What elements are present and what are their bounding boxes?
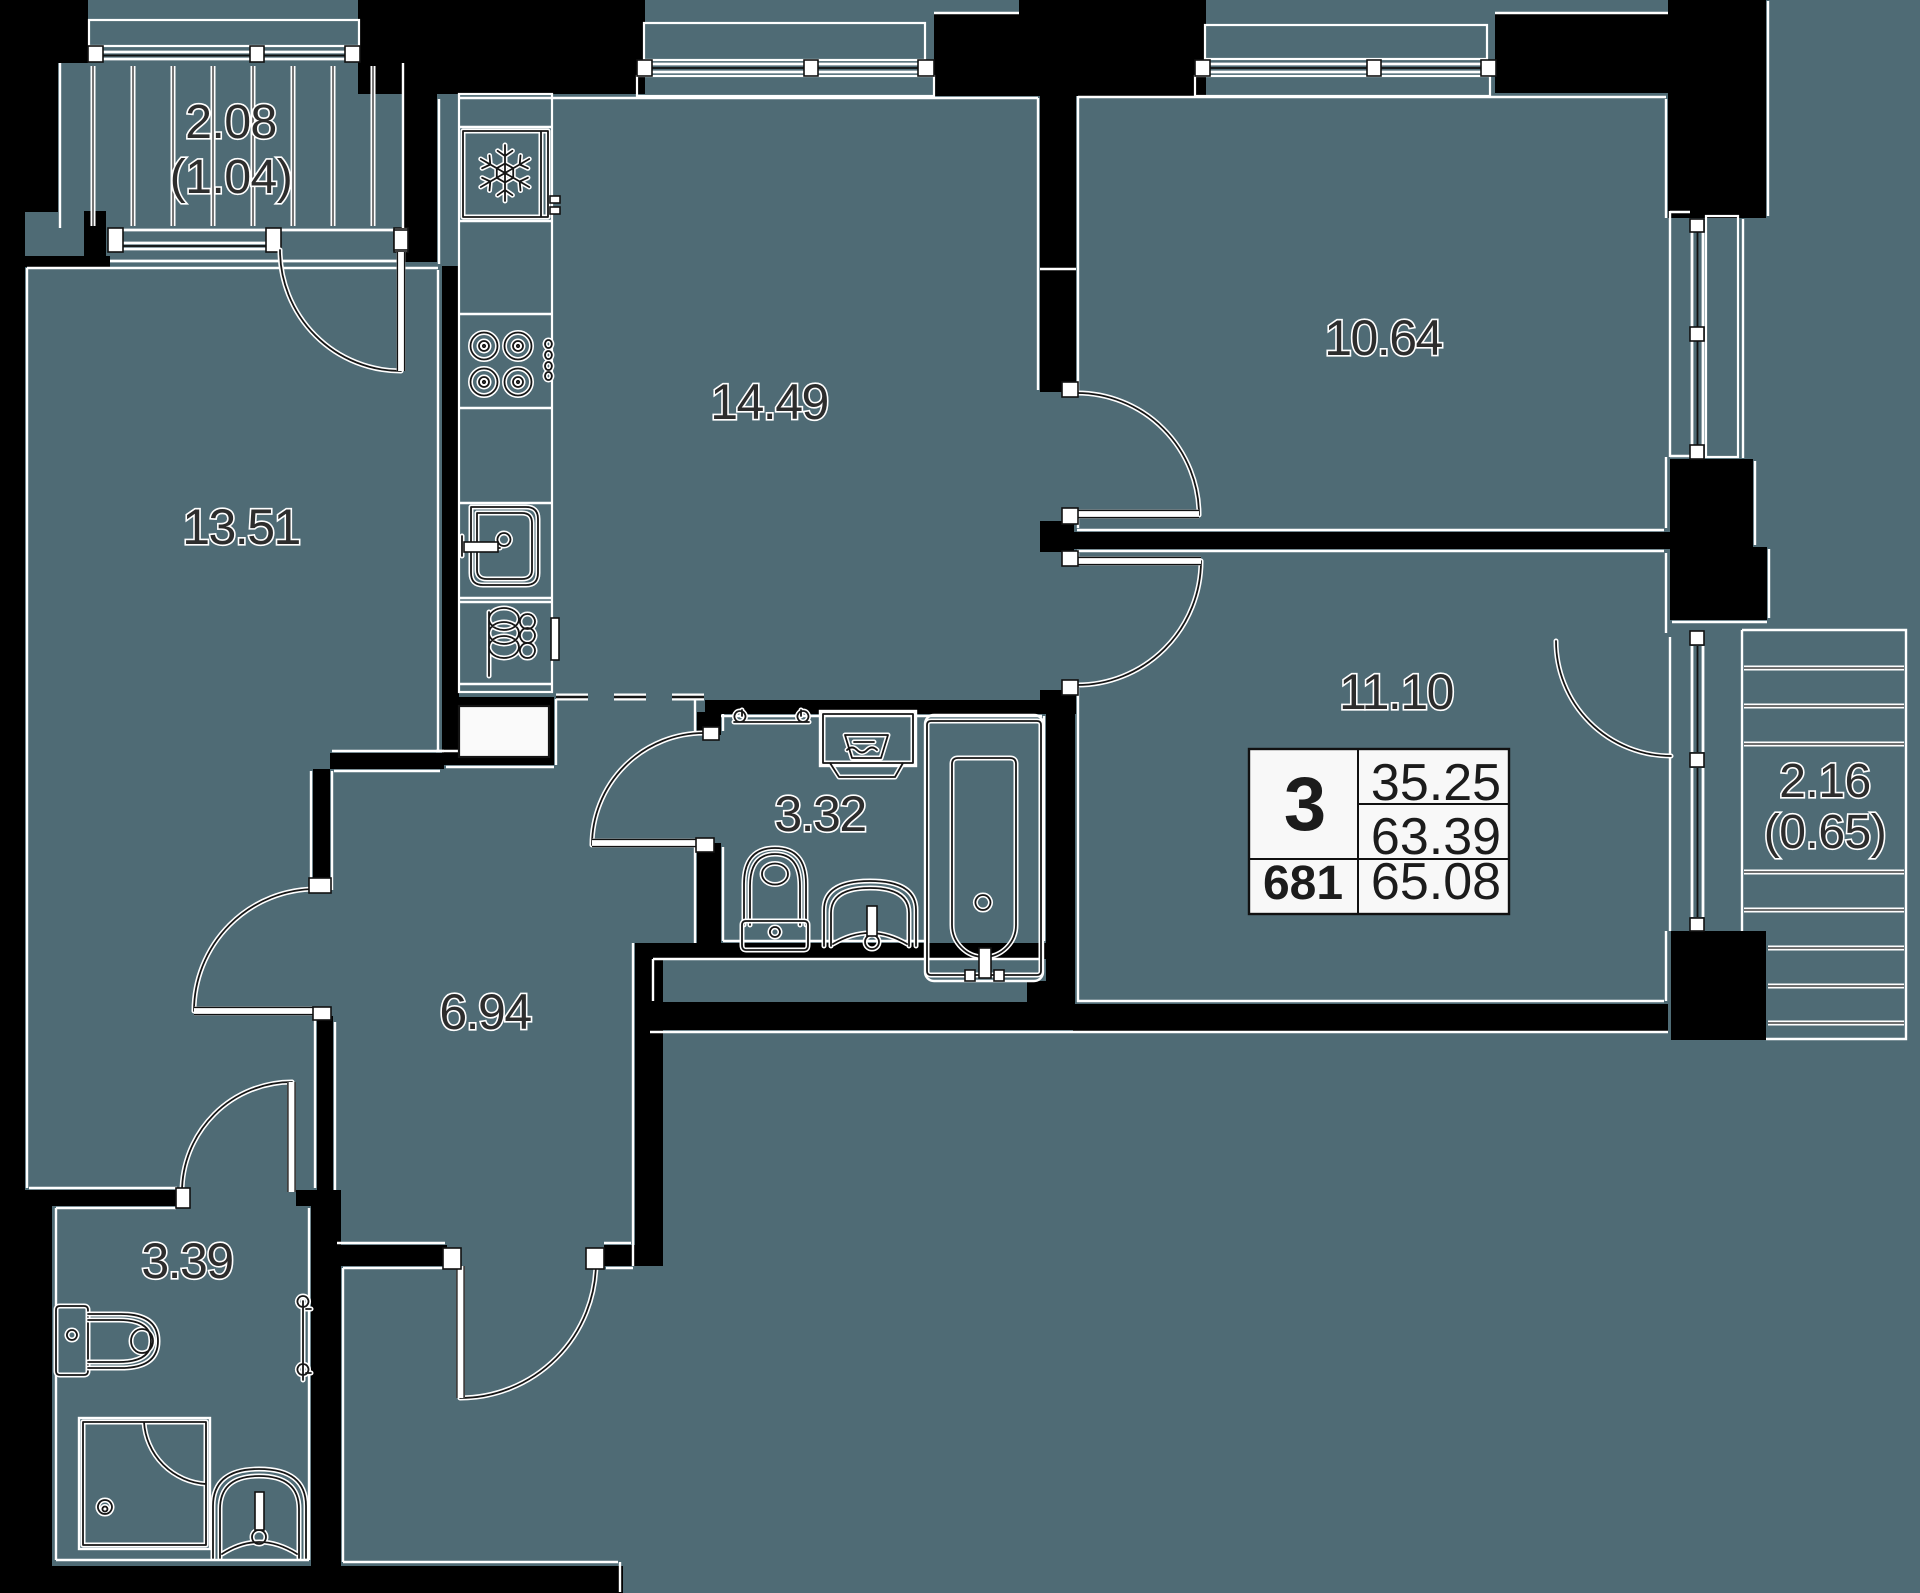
svg-text:2.16: 2.16 xyxy=(1779,755,1870,808)
svg-text:10.64: 10.64 xyxy=(1324,310,1442,366)
svg-text:35.25: 35.25 xyxy=(1371,754,1501,812)
svg-text:(0.65): (0.65) xyxy=(1764,806,1886,859)
svg-text:14.49: 14.49 xyxy=(710,374,828,430)
svg-text:11.10: 11.10 xyxy=(1339,664,1453,720)
svg-text:(1.04): (1.04) xyxy=(170,151,292,204)
svg-text:65.08: 65.08 xyxy=(1371,853,1501,911)
svg-text:3.32: 3.32 xyxy=(774,786,865,842)
svg-text:13.51: 13.51 xyxy=(182,499,300,555)
svg-text:6.94: 6.94 xyxy=(439,984,531,1040)
svg-text:3: 3 xyxy=(1284,762,1326,847)
svg-text:2.08: 2.08 xyxy=(185,96,276,149)
svg-text:3.39: 3.39 xyxy=(141,1233,232,1289)
svg-text:681: 681 xyxy=(1263,857,1343,910)
